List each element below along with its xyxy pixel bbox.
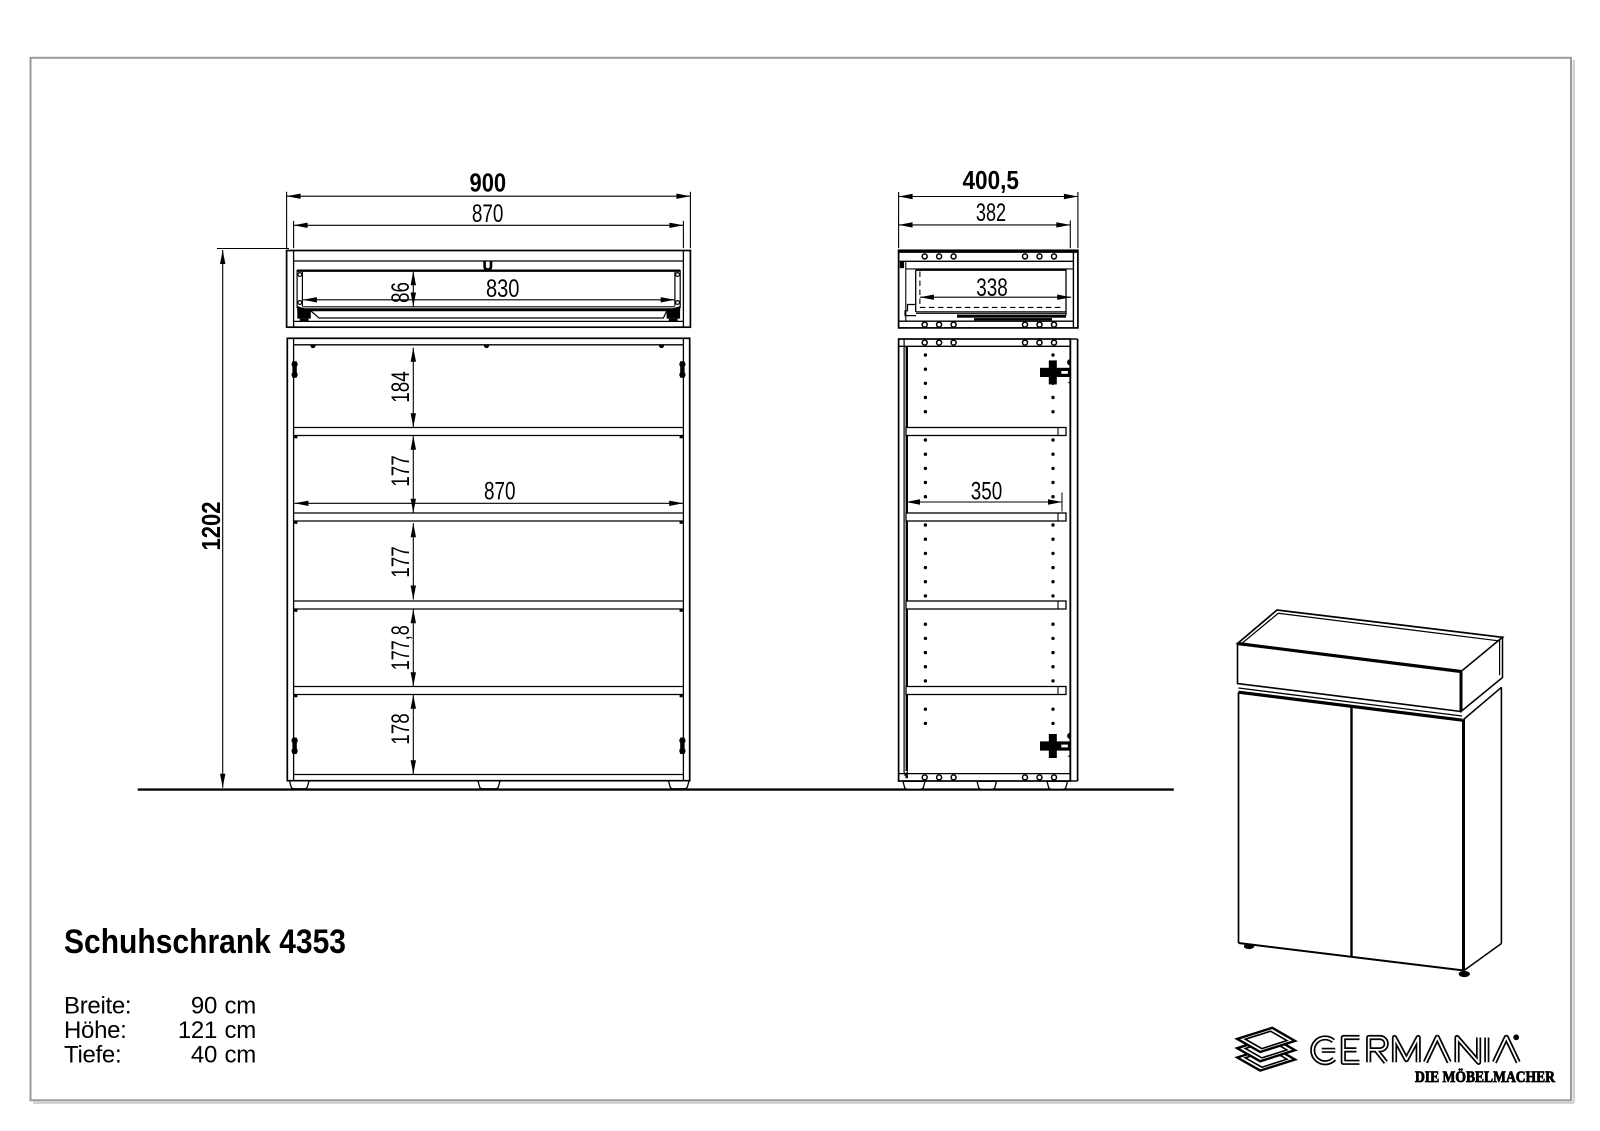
svg-text:184: 184 bbox=[387, 371, 415, 403]
svg-text:900: 900 bbox=[470, 168, 507, 198]
svg-text:Breite:: Breite: bbox=[64, 993, 131, 1020]
svg-text:Tiefe:: Tiefe: bbox=[64, 1042, 121, 1069]
svg-text:178: 178 bbox=[387, 713, 415, 745]
svg-text:DIE MÖBELMACHER: DIE MÖBELMACHER bbox=[1415, 1068, 1555, 1086]
svg-text:382: 382 bbox=[976, 199, 1006, 227]
svg-text:1202: 1202 bbox=[196, 502, 226, 551]
svg-text:830: 830 bbox=[486, 275, 520, 303]
svg-text:177: 177 bbox=[387, 455, 415, 487]
svg-text:177: 177 bbox=[387, 546, 415, 578]
svg-text:121: 121 bbox=[178, 1017, 217, 1044]
svg-text:Höhe:: Höhe: bbox=[64, 1017, 127, 1044]
svg-text:cm: cm bbox=[225, 1017, 256, 1044]
svg-text:400,5: 400,5 bbox=[963, 165, 1019, 195]
svg-text:870: 870 bbox=[472, 200, 504, 228]
svg-text:177,8: 177,8 bbox=[387, 625, 415, 670]
svg-text:cm: cm bbox=[225, 993, 256, 1020]
svg-text:40: 40 bbox=[191, 1042, 217, 1069]
svg-text:870: 870 bbox=[484, 477, 516, 505]
svg-text:cm: cm bbox=[225, 1042, 256, 1069]
svg-text:90: 90 bbox=[191, 993, 217, 1020]
svg-text:Schuhschrank 4353: Schuhschrank 4353 bbox=[64, 923, 346, 961]
svg-text:350: 350 bbox=[971, 478, 1003, 506]
